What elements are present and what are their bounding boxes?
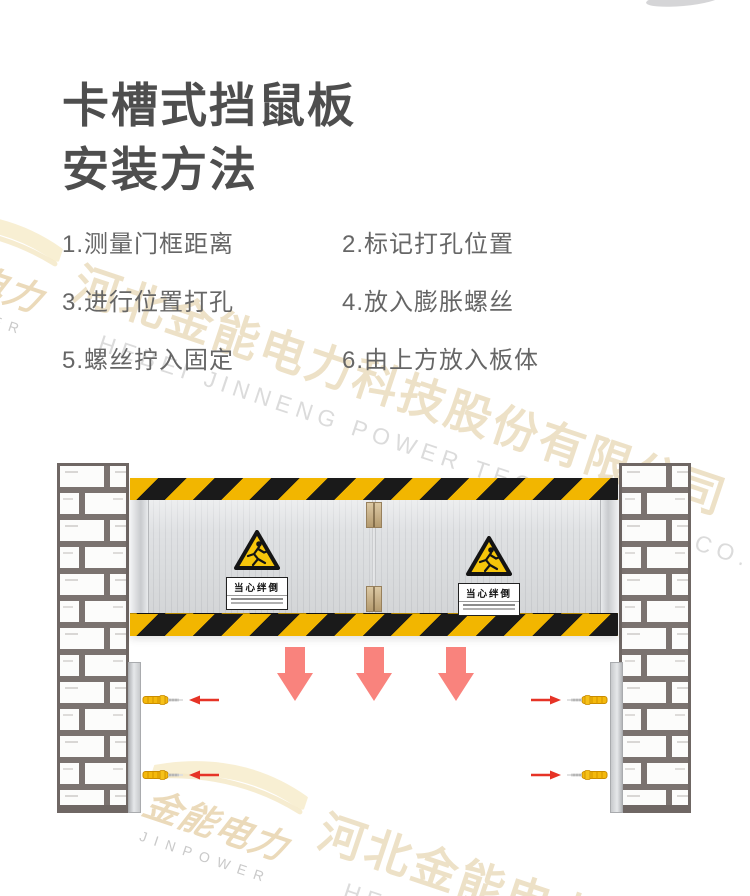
expansion-anchor-icon [566, 769, 608, 781]
down-arrow-icon [438, 647, 474, 701]
right-arrow-icon [530, 694, 562, 706]
warning-sign-text: 当心绊倒 [459, 584, 519, 602]
brick-wall-right [619, 463, 691, 813]
slot-rail-right [610, 662, 623, 813]
expansion-anchor-icon [566, 694, 608, 706]
trip-hazard-triangle-icon [234, 530, 280, 570]
step-4: 4.放入膨胀螺丝 [342, 282, 514, 317]
step-3: 3.进行位置打孔 [62, 282, 234, 317]
brick-wall-left [57, 463, 129, 813]
warning-sign-left: 当心绊倒 [222, 530, 292, 610]
warning-sign-text: 当心绊倒 [227, 578, 287, 596]
page-title: 卡槽式挡鼠板 安装方法 [62, 74, 356, 202]
title-line-1: 卡槽式挡鼠板 [62, 74, 356, 138]
hinge-icon [366, 502, 382, 528]
board-endcap-right [600, 500, 619, 613]
down-arrow-icon [356, 647, 392, 701]
hinge-icon [366, 586, 382, 612]
down-arrow-icon [277, 647, 313, 701]
warning-sign-small-print [231, 598, 283, 607]
step-5: 5.螺丝拧入固定 [62, 340, 234, 375]
right-arrow-icon [530, 769, 562, 781]
trip-hazard-triangle-icon [466, 536, 512, 576]
warning-sign-label: 当心绊倒 [458, 583, 520, 616]
hazard-stripe-top [130, 478, 618, 501]
slot-rail-left [128, 662, 141, 813]
board-endcap-left [130, 500, 149, 613]
warning-sign-right: 当心绊倒 [454, 536, 524, 616]
product-installation-poster: 金能电力 JINPOWER 河北金能电力科技股份有限公司 HEBEI JINNE… [0, 0, 750, 896]
left-arrow-icon [188, 769, 220, 781]
warning-sign-small-print [463, 604, 515, 613]
step-2: 2.标记打孔位置 [342, 224, 514, 259]
title-line-2: 安装方法 [62, 138, 356, 202]
step-1: 1.测量门框距离 [62, 224, 234, 259]
rodent-guard-board: 当心绊倒 当心绊倒 [130, 478, 618, 635]
left-arrow-icon [188, 694, 220, 706]
expansion-anchor-icon [142, 694, 184, 706]
expansion-anchor-icon [142, 769, 184, 781]
step-6: 6.由上方放入板体 [342, 340, 539, 375]
hazard-stripe-bottom [130, 613, 618, 636]
warning-sign-label: 当心绊倒 [226, 577, 288, 610]
